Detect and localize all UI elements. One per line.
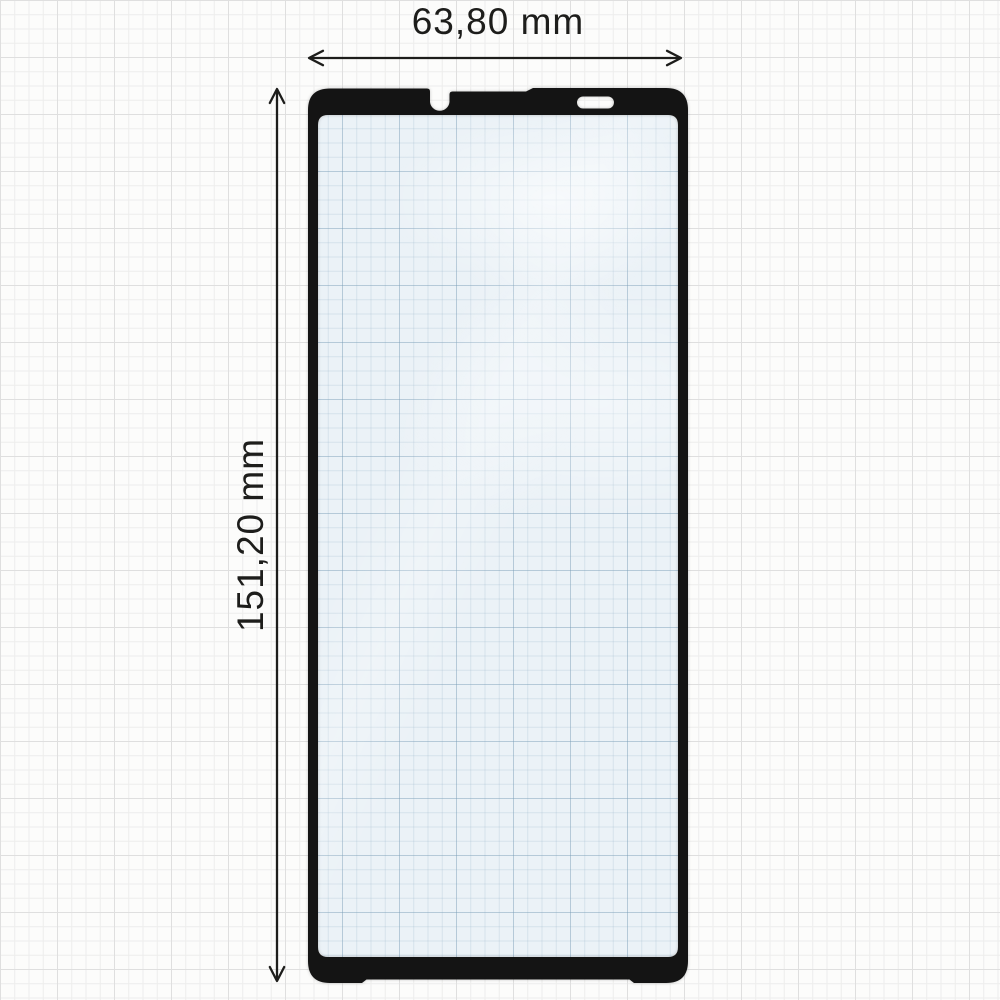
width-dimension-arrow <box>309 51 681 65</box>
width-dimension-label: 63,80 mm <box>333 0 663 44</box>
protector-screen-area <box>318 115 678 957</box>
graph-paper-background: 63,80 mm 151,20 mm <box>0 0 1000 1000</box>
height-dimension-label: 151,20 mm <box>228 425 274 645</box>
